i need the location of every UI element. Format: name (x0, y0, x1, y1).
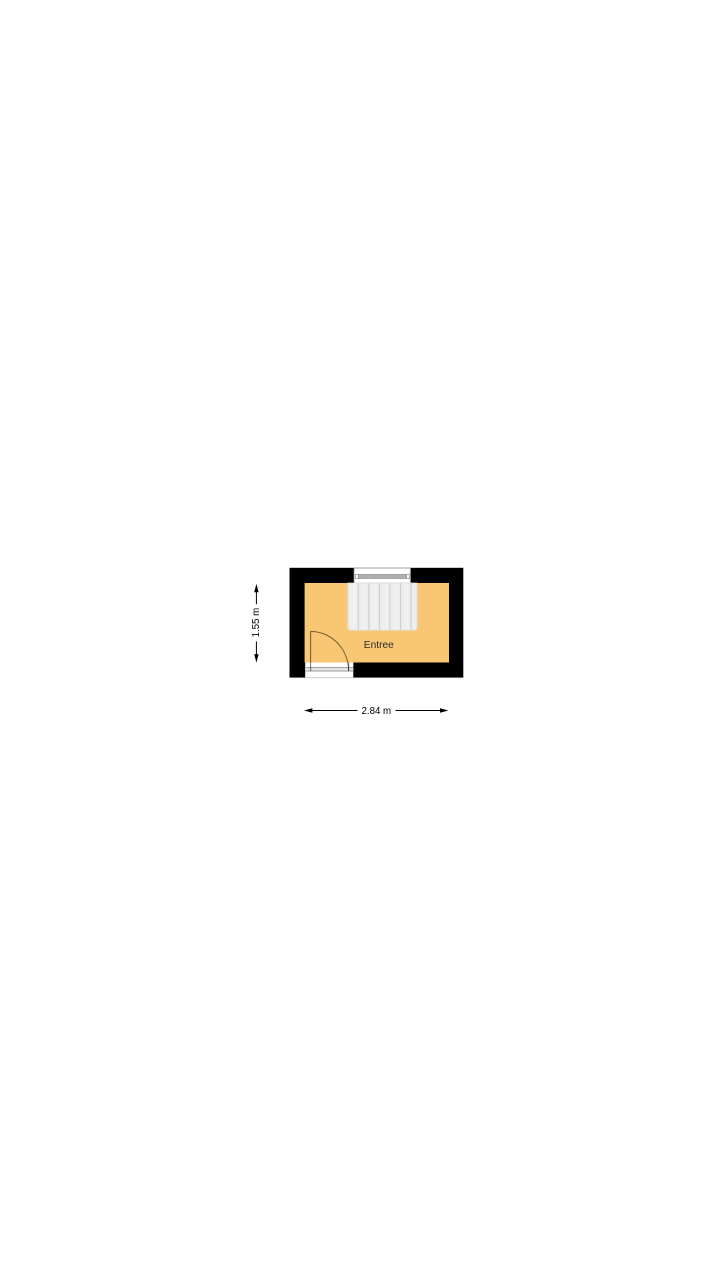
svg-text:1.55 m: 1.55 m (251, 608, 262, 638)
svg-text:Entree: Entree (364, 640, 394, 651)
svg-text:2.84 m: 2.84 m (361, 706, 391, 717)
